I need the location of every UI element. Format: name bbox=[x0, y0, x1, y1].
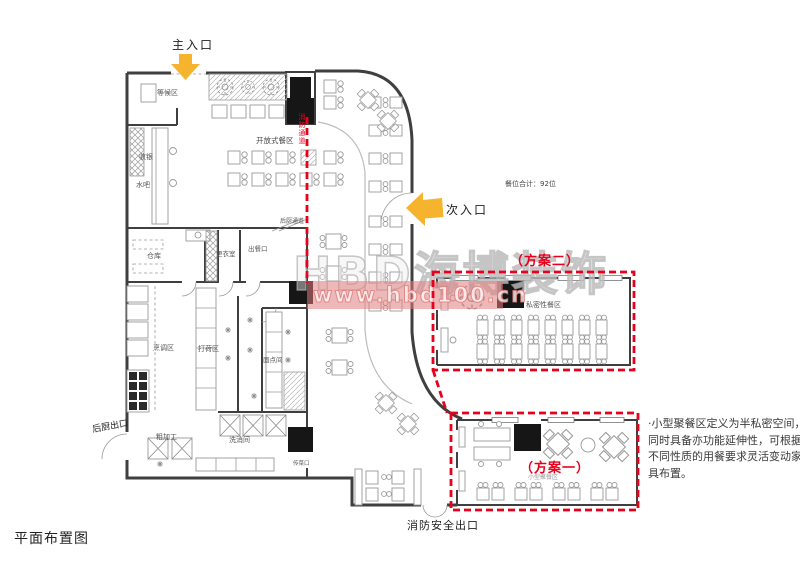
label-washing-room: 洗消间 bbox=[229, 435, 250, 445]
label-cashier: 收银 bbox=[139, 152, 153, 162]
label-secondary-entrance: 次入口 bbox=[446, 201, 488, 218]
label-changing-room: 更衣室 bbox=[216, 248, 236, 258]
label-kitchen-corridor: 后厨通道 bbox=[280, 216, 304, 225]
plan2-dashed-box bbox=[433, 272, 634, 370]
label-fire-safety-exit: 消防安全出口 bbox=[407, 517, 479, 533]
label-open-dining: 开放式餐区 bbox=[256, 135, 294, 146]
label-waiting-area: 等候区 bbox=[157, 88, 178, 98]
drawing-title: 平面布置图 bbox=[14, 528, 89, 548]
label-food-pass: 传菜口 bbox=[293, 459, 310, 467]
label-cooking-area: 烹调区 bbox=[153, 343, 174, 353]
label-main-entrance: 主入口 bbox=[172, 36, 214, 53]
label-water-bar: 水吧 bbox=[136, 180, 150, 190]
label-plan1-subtitle: 小型聚餐区 bbox=[528, 472, 558, 481]
label-seat-total: 餐位合计：92位 bbox=[505, 179, 556, 189]
label-storage: 仓库 bbox=[147, 251, 161, 261]
label-prep-area: 打荷区 bbox=[198, 344, 219, 354]
label-fire-lane: 消防通道 bbox=[297, 113, 307, 145]
label-pastry-room: 面点间 bbox=[263, 354, 283, 364]
floor-plan-page: HBD海博装饰 www.hbd100.cn 平面布置图 主入口 次入口 等候区 … bbox=[0, 0, 800, 566]
label-plan2: （方案二） bbox=[510, 250, 580, 269]
secondary-entrance-arrow-icon bbox=[406, 192, 444, 226]
label-serving-port: 出餐口 bbox=[248, 243, 268, 253]
main-entrance-arrow-icon bbox=[171, 54, 200, 80]
label-private-dining: 私密性餐区 bbox=[526, 300, 561, 310]
label-rough-processing: 粗加工 bbox=[156, 432, 177, 442]
design-note: ·小型聚餐区定义为半私密空间，同时具备亦功能延伸性，可根据不同性质的用餐要求灵活… bbox=[648, 416, 800, 482]
plans-connector-dashed bbox=[433, 370, 447, 413]
